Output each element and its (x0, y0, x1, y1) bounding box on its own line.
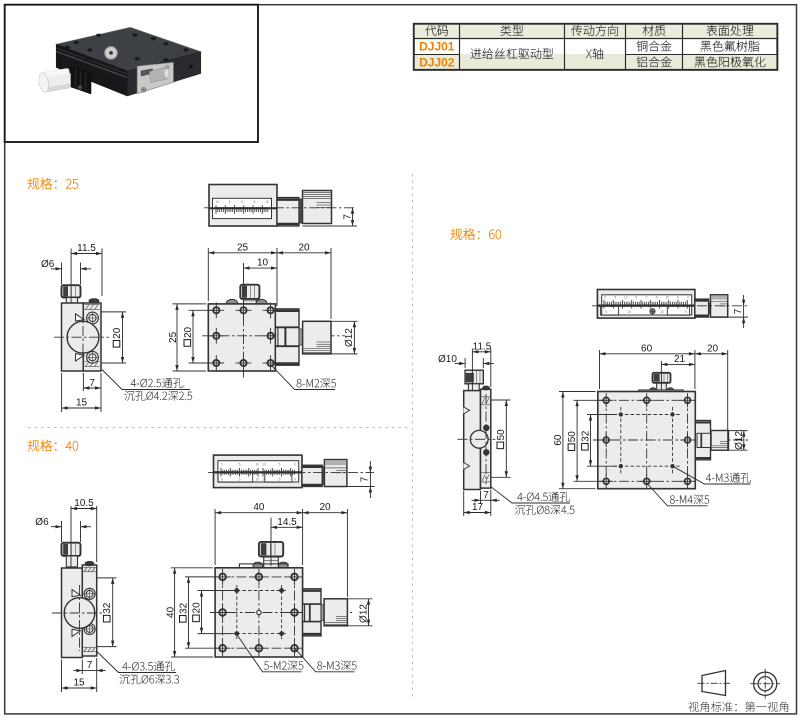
svg-text:0: 0 (646, 295, 648, 299)
svg-text:11.5: 11.5 (77, 243, 96, 254)
svg-text:10: 10 (262, 478, 266, 482)
svg-text:5: 5 (605, 310, 607, 314)
svg-text:0: 0 (294, 463, 296, 467)
svg-text:10: 10 (265, 200, 269, 204)
svg-text:20: 20 (192, 602, 203, 614)
svg-text:50: 50 (567, 431, 578, 443)
svg-text:10: 10 (257, 258, 269, 269)
svg-text:7: 7 (359, 476, 370, 482)
svg-text:Ø6: Ø6 (35, 517, 49, 528)
svg-text:5: 5 (239, 478, 241, 482)
svg-text:25: 25 (168, 331, 179, 343)
svg-text:5: 5 (254, 200, 256, 204)
svg-text:32: 32 (102, 602, 113, 614)
svg-text:7: 7 (483, 490, 489, 501)
svg-text:15: 15 (73, 678, 85, 689)
svg-text:5: 5 (685, 310, 687, 314)
svg-text:0: 0 (604, 295, 606, 299)
svg-text:21: 21 (674, 354, 686, 365)
svg-text:5: 5 (239, 463, 241, 467)
svg-text:7: 7 (87, 660, 93, 671)
svg-text:10.5: 10.5 (74, 498, 94, 509)
svg-text:10: 10 (627, 310, 631, 314)
svg-text:20: 20 (707, 343, 719, 354)
svg-text:0: 0 (294, 478, 296, 482)
svg-text:7: 7 (342, 214, 353, 220)
svg-text:DJJ02: DJJ02 (419, 55, 455, 69)
svg-text:10: 10 (624, 295, 628, 299)
svg-text:32: 32 (580, 430, 591, 442)
svg-text:10: 10 (255, 463, 259, 467)
svg-text:0: 0 (687, 295, 689, 299)
svg-text:25: 25 (237, 242, 249, 253)
svg-text:5: 5 (635, 295, 637, 299)
svg-text:5: 5 (614, 295, 616, 299)
svg-text:32: 32 (178, 602, 189, 614)
svg-text:Ø6: Ø6 (41, 259, 55, 270)
svg-text:10: 10 (262, 463, 266, 467)
svg-text:10: 10 (665, 295, 669, 299)
svg-text:0: 0 (221, 463, 223, 467)
svg-text:14.5: 14.5 (277, 517, 297, 528)
svg-text:Ø12: Ø12 (344, 328, 355, 347)
svg-text:5: 5 (279, 478, 281, 482)
svg-text:20: 20 (112, 327, 123, 339)
svg-text:DJJ01: DJJ01 (419, 40, 455, 54)
svg-text:15: 15 (76, 398, 88, 409)
svg-text:0: 0 (241, 200, 243, 204)
svg-text:Ø10: Ø10 (438, 354, 457, 365)
svg-text:0: 0 (221, 478, 223, 482)
svg-text:10: 10 (255, 478, 259, 482)
svg-text:40: 40 (166, 606, 177, 618)
svg-text:20: 20 (319, 502, 331, 513)
svg-text:11.5: 11.5 (473, 341, 492, 352)
svg-text:20: 20 (183, 326, 194, 338)
svg-text:5: 5 (279, 463, 281, 467)
svg-text:60: 60 (553, 434, 564, 446)
svg-text:5: 5 (656, 295, 658, 299)
svg-text:5: 5 (229, 200, 231, 204)
svg-text:Ø12: Ø12 (734, 431, 745, 450)
svg-text:17: 17 (472, 502, 484, 513)
svg-text:50: 50 (496, 429, 507, 441)
svg-text:40: 40 (253, 502, 265, 513)
svg-text:10: 10 (215, 200, 219, 204)
svg-text:7: 7 (89, 378, 95, 389)
svg-text:7: 7 (733, 308, 744, 314)
svg-text:Ø12: Ø12 (358, 604, 369, 623)
svg-text:10: 10 (660, 310, 664, 314)
svg-text:60: 60 (641, 343, 653, 354)
svg-text:20: 20 (298, 242, 310, 253)
svg-text:5: 5 (677, 295, 679, 299)
